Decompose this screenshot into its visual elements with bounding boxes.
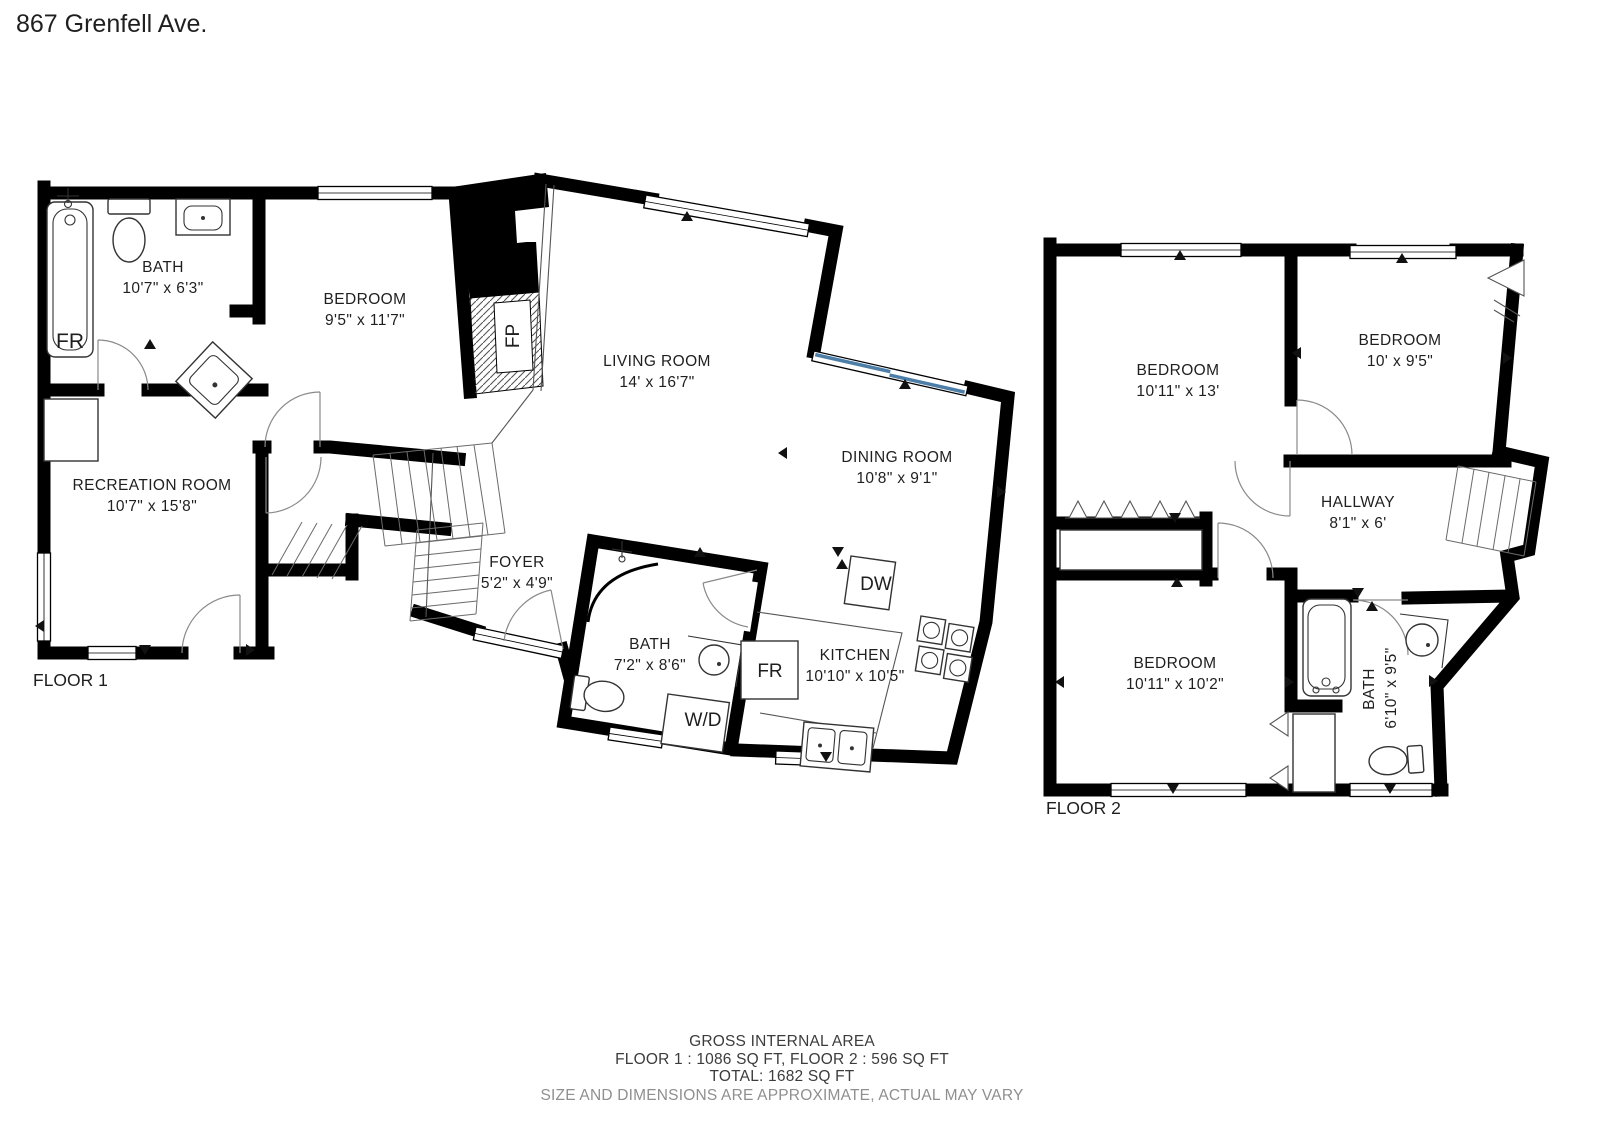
- footer-floor-areas: FLOOR 1 : 1086 SQ FT, FLOOR 2 : 596 SQ F…: [615, 1051, 949, 1068]
- room-dims-f2-bedroom2: 10' x 9'5": [1367, 353, 1433, 370]
- room-label-f2-bath: BATH: [1361, 668, 1378, 710]
- room-label-f2-bedroom3: BEDROOM: [1134, 655, 1217, 672]
- floor2-label: FLOOR 2: [1046, 798, 1121, 818]
- footer-gross-area: GROSS INTERNAL AREA: [689, 1033, 875, 1050]
- page-title: 867 Grenfell Ave.: [16, 10, 207, 38]
- label-dishwasher: DW: [860, 574, 892, 595]
- room-dims-kitchen: 10'10" x 10'5": [805, 668, 904, 685]
- room-label-kitchen: KITCHEN: [820, 647, 891, 664]
- footer-disclaimer: SIZE AND DIMENSIONS ARE APPROXIMATE, ACT…: [541, 1087, 1024, 1104]
- footer-total-area: TOTAL: 1682 SQ FT: [710, 1068, 855, 1085]
- room-dims-living: 14' x 16'7": [619, 374, 694, 391]
- bedroom1-window: [318, 187, 432, 200]
- recreation-bottom-window: [88, 647, 136, 660]
- room-dims-f2-bedroom1: 10'11" x 13': [1136, 383, 1219, 400]
- basement-freezer-box: [44, 399, 98, 461]
- f2-bedroom3-window: [1111, 784, 1246, 797]
- floorplan-canvas: 867 Grenfell Ave.: [0, 0, 1600, 1130]
- label-kitchen-fridge: FR: [757, 661, 782, 682]
- label-fireplace: FP: [503, 324, 524, 348]
- room-label-bedroom1: BEDROOM: [324, 291, 407, 308]
- room-label-dining: DINING ROOM: [841, 449, 952, 466]
- room-label-hallway: HALLWAY: [1321, 494, 1395, 511]
- room-dims-f2-bath: 6'10" x 9'5": [1383, 647, 1400, 728]
- room-dims-bath1: 10'7" x 6'3": [122, 280, 203, 297]
- room-dims-bath2: 7'2" x 8'6": [614, 657, 686, 674]
- room-dims-recreation: 10'7" x 15'8": [107, 498, 197, 515]
- floor1-label: FLOOR 1: [33, 670, 108, 690]
- room-label-bath1: BATH: [142, 259, 184, 276]
- label-washer-dryer: W/D: [685, 710, 722, 731]
- room-label-bath2: BATH: [629, 636, 671, 653]
- f2-bathtub-icon: [1303, 599, 1351, 696]
- room-dims-bedroom1: 9'5" x 11'7": [325, 312, 405, 329]
- room-dims-foyer: 5'2" x 4'9": [481, 575, 553, 592]
- bedroom1-closet: [1060, 530, 1202, 570]
- room-label-f2-bedroom2: BEDROOM: [1359, 332, 1442, 349]
- room-label-living: LIVING ROOM: [603, 353, 711, 370]
- room-dims-hallway: 8'1" x 6': [1329, 515, 1386, 532]
- room-dims-f2-bedroom3: 10'11" x 10'2": [1126, 676, 1224, 693]
- room-label-recreation: RECREATION ROOM: [73, 477, 232, 494]
- label-basement-freezer: FR: [56, 330, 84, 353]
- bedroom3-closet: [1293, 714, 1335, 792]
- bathroom-sink-icon: [176, 199, 230, 235]
- background: [0, 0, 1600, 1130]
- room-label-foyer: FOYER: [489, 554, 544, 571]
- double-sink-icon: [800, 722, 874, 772]
- room-dims-dining: 10'8" x 9'1": [856, 470, 937, 487]
- room-label-f2-bedroom1: BEDROOM: [1137, 362, 1220, 379]
- chimney-notch: [517, 212, 539, 242]
